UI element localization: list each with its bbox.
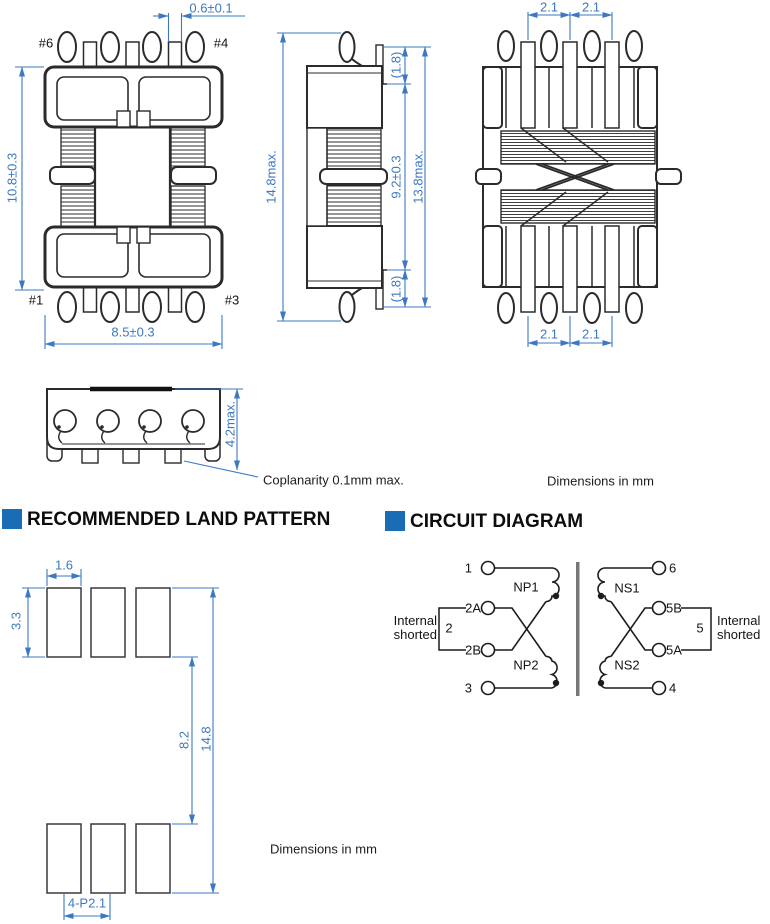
terminal-label-6: 6 [669, 561, 676, 576]
front-view-drawing [45, 32, 222, 322]
coplanarity-note: Coplanarity 0.1mm max. [263, 473, 404, 488]
side-view-drawing [307, 32, 387, 322]
bottom-view-drawing [47, 389, 220, 463]
terminal-label-4: 4 [669, 681, 676, 696]
datasheet-drawing-page: #6 #4 #1 #3 0.6±0.1 10.8±0.3 8.5±0.3 14.… [0, 0, 770, 924]
dim-lead-top: (1.8) [389, 52, 404, 79]
dim-winding-height: 9.2±0.3 [389, 155, 404, 198]
internal-shorted-right: Internal shorted [717, 614, 770, 642]
dim-pitch-bottom-left: 2.1 [540, 327, 558, 342]
winding-label-np2: NP2 [513, 658, 538, 673]
dim-front-width: 8.5±0.3 [111, 325, 154, 340]
terminal-label-2a: 2A [465, 601, 481, 616]
circuit-diagram-title: CIRCUIT DIAGRAM [410, 511, 583, 533]
dim-tab-width: 0.6±0.1 [189, 1, 232, 16]
pin-label-6: #6 [39, 36, 53, 51]
terminal-label-5a: 5A [666, 643, 682, 658]
shorted-pin-5: 5 [696, 621, 703, 636]
dim-pitch-bottom-right: 2.1 [582, 327, 600, 342]
units-note-land-pattern: Dimensions in mm [270, 842, 377, 857]
winding-label-ns2: NS2 [614, 658, 639, 673]
dim-pitch-top-left: 2.1 [540, 0, 558, 15]
rear-view-drawing [476, 31, 681, 323]
internal-shorted-left: Internal shorted [381, 614, 437, 642]
dim-mounted-height: 4.2max. [223, 401, 238, 447]
dim-pad-pitch: 4-P2.1 [68, 896, 106, 911]
shorted-pin-2: 2 [445, 621, 452, 636]
dim-front-height: 10.8±0.3 [5, 153, 20, 204]
section-accent-square [2, 509, 22, 529]
terminal-label-2b: 2B [465, 643, 481, 658]
terminal-label-1: 1 [465, 561, 472, 576]
dim-pitch-top-right: 2.1 [582, 0, 600, 15]
terminal-label-5b: 5B [666, 601, 682, 616]
pin-label-1: #1 [29, 293, 43, 308]
dim-pad-height: 3.3 [9, 612, 24, 630]
section-accent-square [385, 511, 405, 531]
circuit-diagram-drawing [439, 562, 711, 697]
pin-label-3: #3 [225, 293, 239, 308]
dim-pad-width: 1.6 [55, 558, 73, 573]
pin-label-4: #4 [214, 36, 228, 51]
land-pattern-drawing [47, 588, 170, 893]
units-note-top: Dimensions in mm [547, 474, 654, 489]
dim-total-height: 14.8max. [264, 150, 279, 203]
drawing-canvas [0, 0, 770, 924]
dim-pad-gap: 8.2 [177, 731, 192, 749]
dim-pattern-total: 14.8 [199, 726, 214, 751]
dim-lead-bottom: (1.8) [389, 276, 404, 303]
winding-label-ns1: NS1 [614, 581, 639, 596]
winding-label-np1: NP1 [513, 580, 538, 595]
dim-body-height: 13.8max. [411, 150, 426, 203]
land-pattern-title: RECOMMENDED LAND PATTERN [27, 509, 330, 531]
terminal-label-3: 3 [465, 681, 472, 696]
